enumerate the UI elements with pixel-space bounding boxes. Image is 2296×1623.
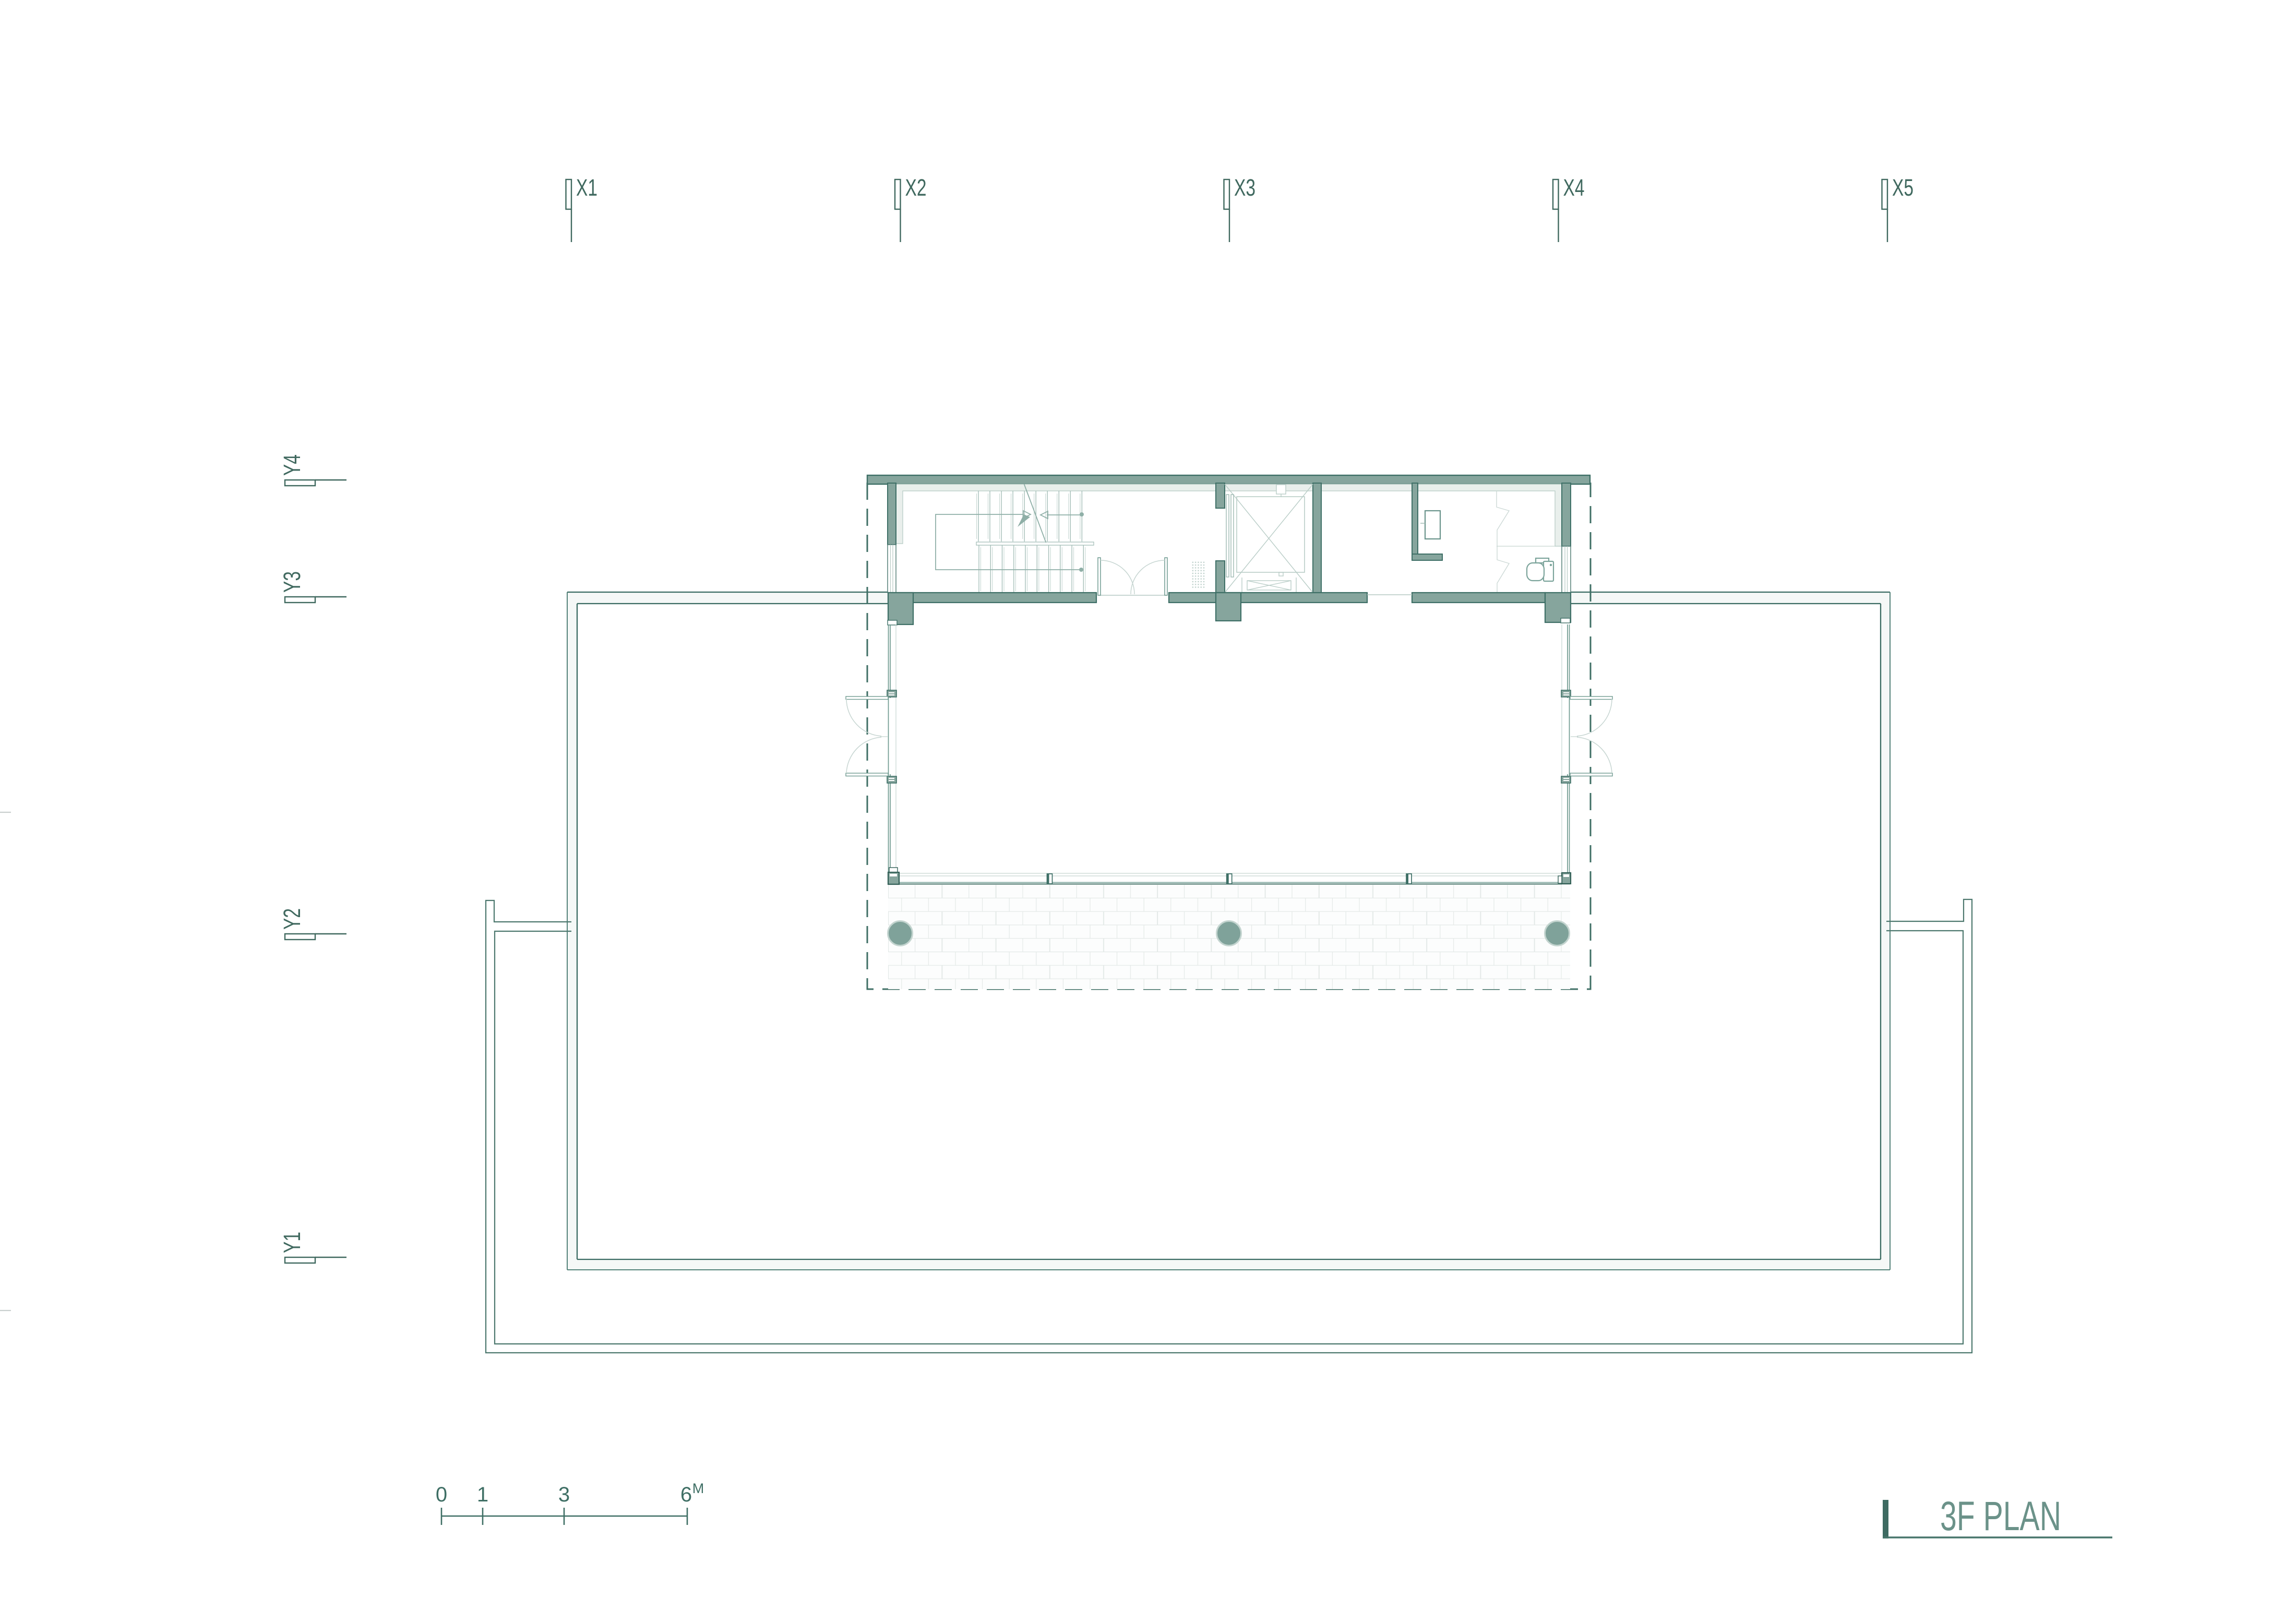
svg-text:M: M [692,1481,704,1496]
svg-text:3F PLAN: 3F PLAN [1940,1493,2061,1539]
svg-text:0: 0 [436,1483,447,1506]
svg-text:X2: X2 [905,174,927,201]
svg-text:X1: X1 [576,174,597,201]
svg-text:6: 6 [680,1483,692,1506]
svg-text:1: 1 [477,1483,488,1506]
svg-text:Y2: Y2 [279,908,305,930]
svg-text:Y4: Y4 [279,454,305,476]
svg-text:X5: X5 [1892,174,1914,201]
svg-text:X4: X4 [1563,174,1585,201]
svg-text:3: 3 [558,1483,570,1506]
svg-text:X3: X3 [1234,174,1255,201]
svg-text:Y1: Y1 [279,1232,305,1253]
svg-text:Y3: Y3 [279,571,305,593]
